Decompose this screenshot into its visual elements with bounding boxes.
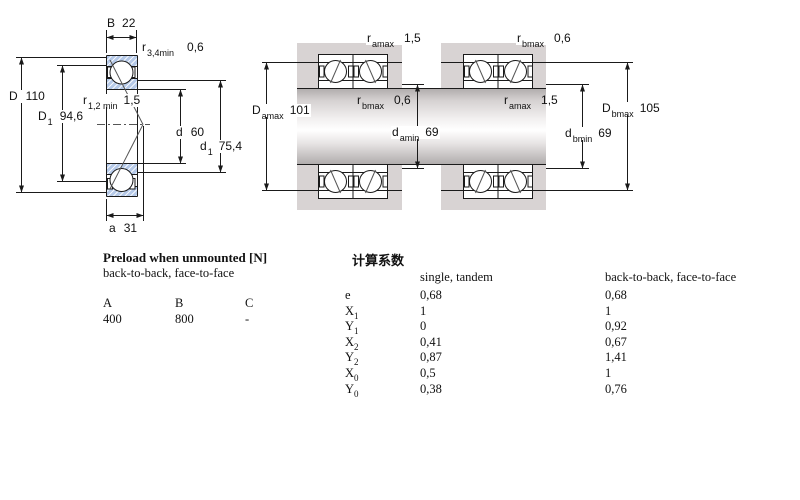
factors-col2-header: back-to-back, face-to-face (605, 270, 736, 285)
dim-label-damin: damin 69 (391, 126, 440, 139)
dim-label-ramax-b: ramax 1,5 (504, 94, 558, 107)
factors-table: e 0,680,68 X1 11 Y1 00,92 X2 0,410,67 Y2… (345, 288, 785, 397)
bearing-spec-page: B 22 r3,4min 0,6 D 110 D1 94,6 r1,2 min … (0, 0, 800, 500)
factors-row-x1: X1 11 (345, 304, 785, 320)
factors-row-x2: X2 0,410,67 (345, 335, 785, 351)
preload-title: Preload when unmounted [N] (103, 250, 267, 266)
dim-label-r12min: r1,2 min 1,5 (82, 94, 141, 107)
dim-label-Damax: Damax 101 (251, 104, 311, 117)
arrangement-b-bearing-pairs (464, 55, 533, 199)
dim-label-dbmin: dbmin 69 (564, 127, 613, 140)
factors-row-y0: Y0 0,380,76 (345, 382, 785, 398)
preload-table: A B C 400 800 - (103, 296, 323, 327)
left-bearing-details (97, 60, 150, 192)
preload-col-a: A (103, 296, 175, 312)
preload-col-b: B (175, 296, 245, 312)
dim-label-B: B 22 (106, 17, 136, 30)
preload-value-b: 800 (175, 312, 245, 328)
factors-title: 计算系数 (352, 250, 404, 269)
factors-row-y2: Y2 0,871,41 (345, 350, 785, 366)
dim-label-D: D 110 (8, 90, 46, 103)
preload-value-row: 400 800 - (103, 312, 323, 328)
factors-row-e: e 0,680,68 (345, 288, 785, 304)
dim-label-d1: d1 75,4 (199, 140, 243, 153)
dim-label-d: d 60 (175, 126, 205, 139)
arrangement-a-bearing-pairs (319, 55, 388, 199)
dim-label-D1: D1 94,6 (37, 110, 84, 123)
preload-col-c: C (245, 296, 323, 312)
dim-label-r34min: r3,4min 0,6 (141, 41, 205, 54)
dim-label-ramax-a: ramax 1,5 (366, 32, 422, 45)
preload-value-a: 400 (103, 312, 175, 328)
preload-subtitle: back-to-back, face-to-face (103, 266, 234, 281)
factors-row-y1: Y1 00,92 (345, 319, 785, 335)
factors-col1-header: single, tandem (420, 270, 493, 285)
preload-value-c: - (245, 312, 323, 328)
preload-header-row: A B C (103, 296, 323, 312)
factors-row-x0: X0 0,51 (345, 366, 785, 382)
dim-label-rbmax-a: rbmax 0,6 (357, 94, 411, 107)
dim-label-a: a 31 (108, 222, 138, 235)
dim-label-rbmax-b: rbmax 0,6 (516, 32, 572, 45)
dim-label-Dbmax: Dbmax 105 (601, 102, 661, 115)
